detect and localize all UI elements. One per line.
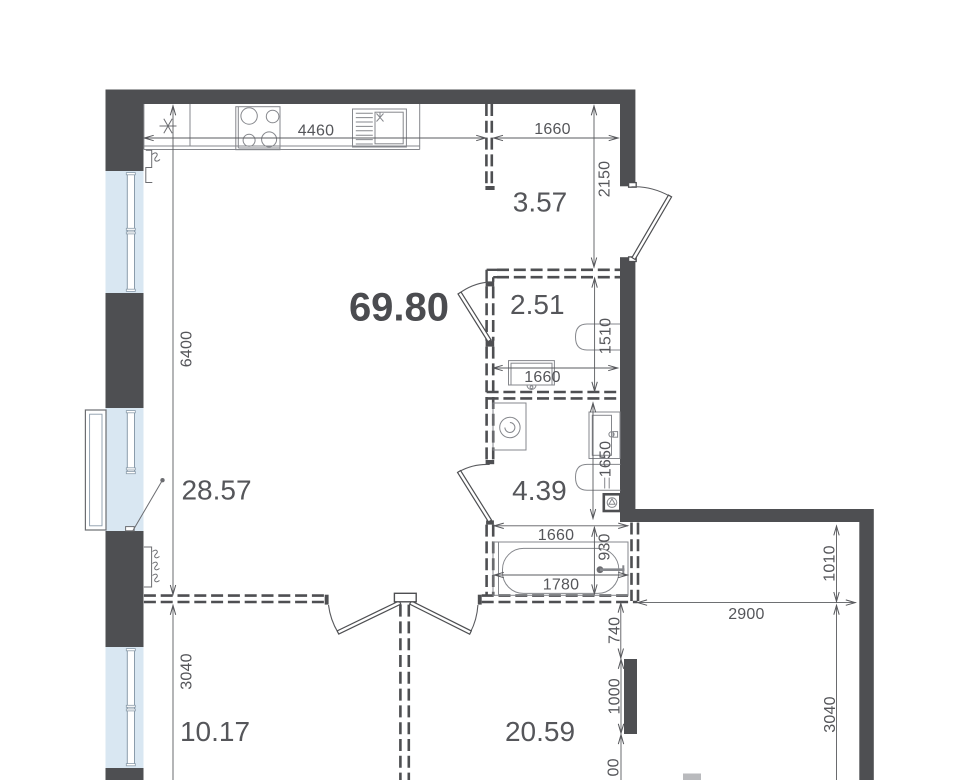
- svg-text:1510: 1510: [598, 318, 615, 354]
- svg-text:1660: 1660: [538, 527, 574, 544]
- svg-text:4.39: 4.39: [512, 475, 567, 506]
- svg-text:10.17: 10.17: [180, 716, 250, 747]
- svg-text:28.57: 28.57: [181, 475, 251, 506]
- svg-text:6400: 6400: [179, 331, 196, 367]
- svg-text:4460: 4460: [298, 123, 334, 140]
- svg-text:3.57: 3.57: [513, 187, 568, 218]
- svg-text:1780: 1780: [543, 576, 579, 593]
- svg-text:3040: 3040: [822, 696, 839, 732]
- svg-text:00: 00: [606, 758, 623, 776]
- svg-text:930: 930: [597, 533, 614, 560]
- svg-text:3040: 3040: [179, 653, 196, 689]
- svg-text:2900: 2900: [728, 606, 764, 623]
- svg-text:1650: 1650: [598, 441, 615, 477]
- svg-text:1660: 1660: [534, 121, 570, 138]
- svg-text:1000: 1000: [606, 678, 623, 714]
- svg-text:2.51: 2.51: [510, 289, 565, 320]
- svg-text:2150: 2150: [597, 161, 614, 197]
- svg-text:740: 740: [606, 617, 623, 644]
- svg-text:1660: 1660: [524, 369, 560, 386]
- svg-text:69.80: 69.80: [349, 286, 449, 330]
- svg-text:20.59: 20.59: [505, 716, 575, 747]
- svg-text:1010: 1010: [822, 545, 839, 581]
